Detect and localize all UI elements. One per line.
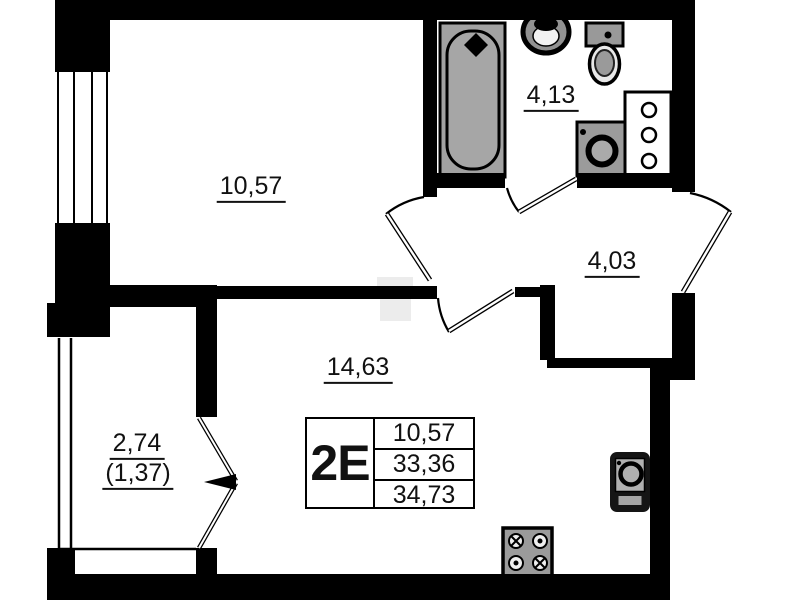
legend-value-2: 33,36 [375,450,473,481]
bathtub-icon [440,23,505,177]
unit-label: 2E [307,419,375,507]
floor-plan-drawing [0,0,799,600]
shelf-cabinet-icon [625,92,671,178]
hallway-area-label: 4,03 [585,248,640,278]
room1-door [386,197,430,280]
balcony-area-label: 2,74 [110,430,165,460]
bathroom-door [507,179,576,212]
legend-values: 10,57 33,36 34,73 [375,419,473,507]
kitchen-sink-icon [610,452,650,512]
door-swing-arrow [204,474,236,490]
bathroom-area-label: 4,13 [524,82,579,112]
living-room-door [438,291,513,332]
legend-table: 2E 10,57 33,36 34,73 [305,417,475,509]
toilet-icon [586,23,623,84]
legend-value-3: 34,73 [375,481,473,510]
walls [47,0,695,600]
legend-value-1: 10,57 [375,419,473,450]
window-icon [58,72,107,223]
balcony-reduced-area-label: (1,37) [102,460,173,490]
stove-icon [503,528,552,576]
floor-plan: 10,57 4,13 4,03 14,63 2,74 (1,37) 2E 10,… [0,0,799,600]
entrance-door [683,193,731,292]
room1-area-label: 10,57 [217,173,286,203]
living-room-area-label: 14,63 [324,354,393,384]
balcony-french-door [199,418,236,548]
washing-machine-icon [577,122,625,176]
